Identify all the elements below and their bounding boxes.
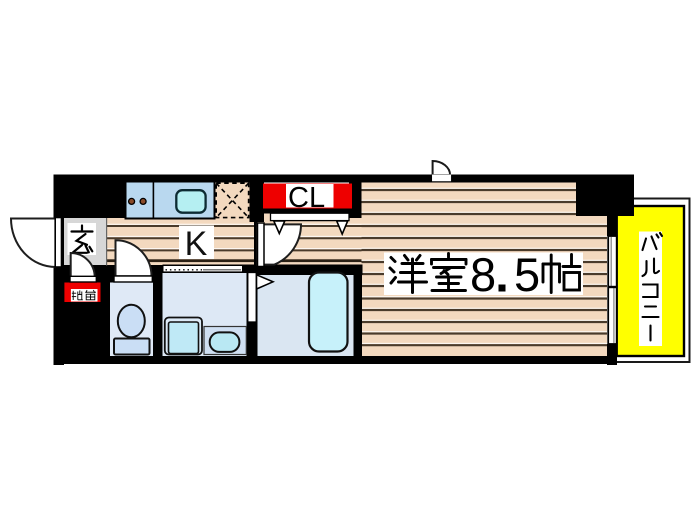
svg-text:CL: CL [288,182,325,214]
svg-text:8: 8 [470,248,496,301]
svg-text:5: 5 [514,248,540,301]
svg-text:K: K [185,225,208,263]
